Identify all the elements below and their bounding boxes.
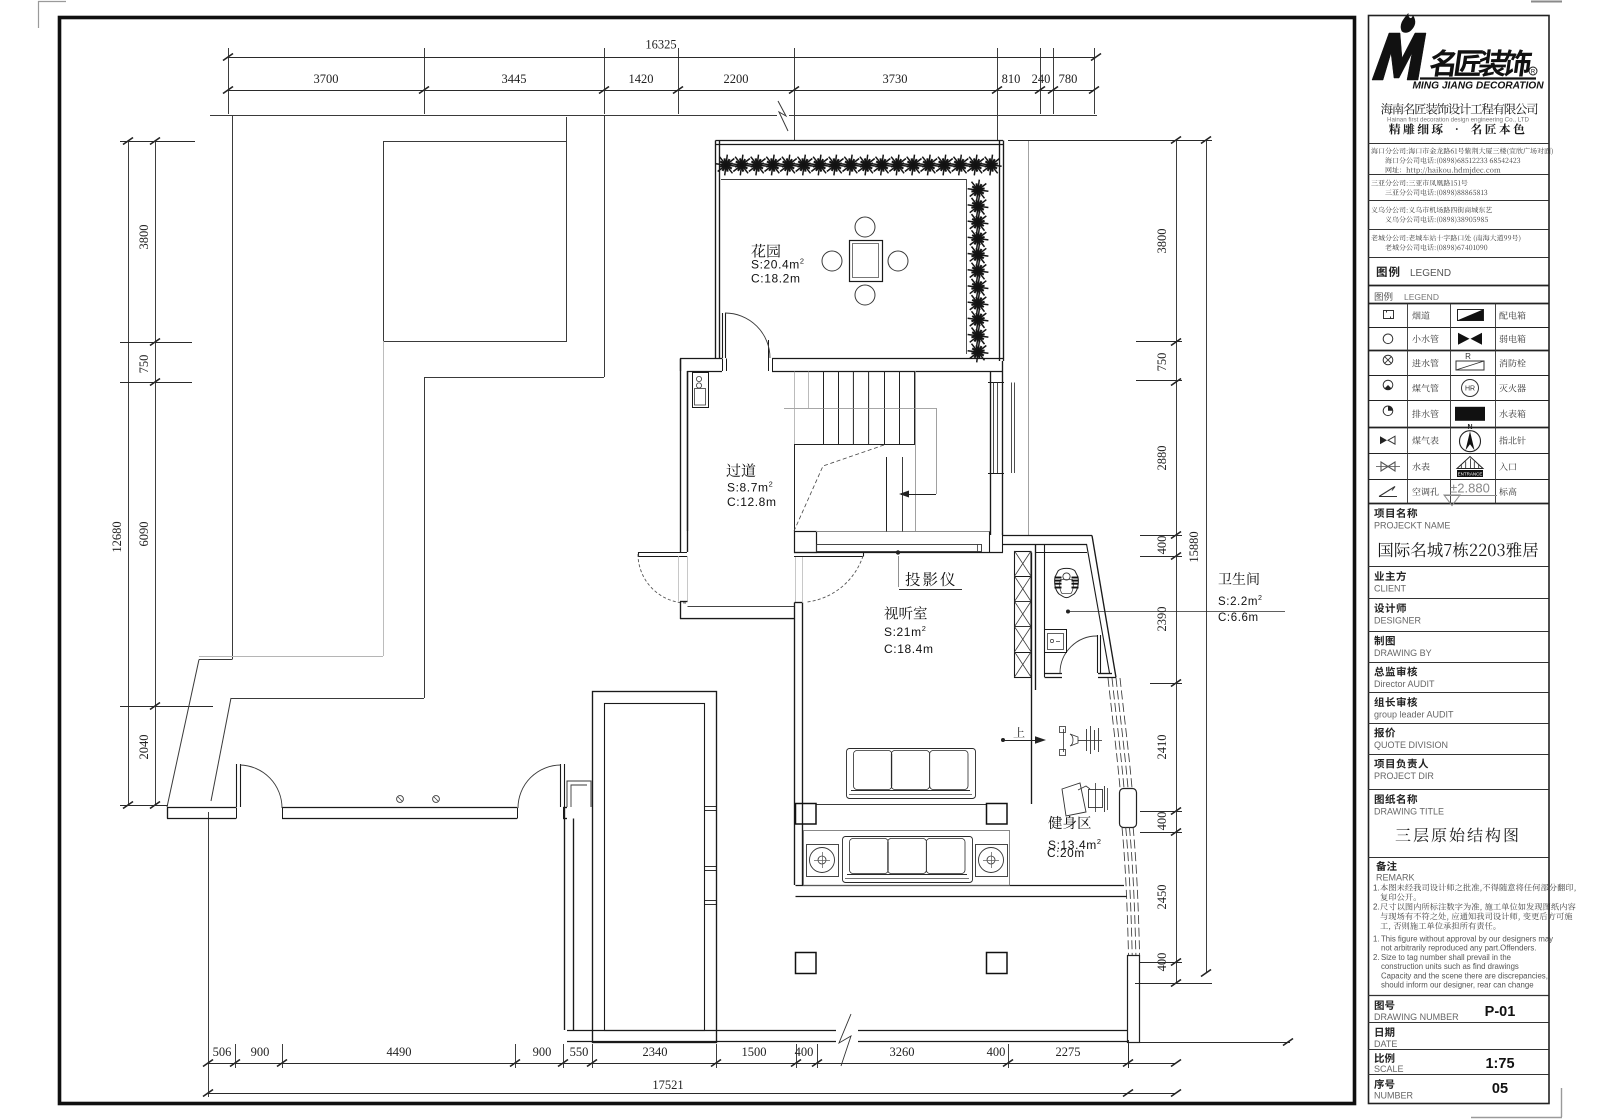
- svg-text:Size to tag number shall preva: Size to tag number shall prevail in the: [1381, 953, 1511, 962]
- svg-text:LEGEND: LEGEND: [1410, 268, 1451, 279]
- svg-text:400: 400: [1155, 536, 1169, 555]
- svg-text:C:20m: C:20m: [1047, 846, 1085, 860]
- svg-text:MING JIANG DECORATION: MING JIANG DECORATION: [1412, 81, 1544, 92]
- svg-text:construction units such as fin: construction units such as find drawings: [1381, 962, 1519, 971]
- svg-text:DRAWING TITLE: DRAWING TITLE: [1374, 807, 1444, 817]
- svg-text:S:2.2m2: S:2.2m2: [1218, 594, 1263, 608]
- svg-text:550: 550: [570, 1045, 589, 1059]
- svg-text:05: 05: [1492, 1081, 1508, 1097]
- svg-text:900: 900: [533, 1045, 552, 1059]
- svg-text:S:20.4m2: S:20.4m2: [751, 257, 805, 272]
- svg-text:240: 240: [1032, 72, 1051, 86]
- svg-text:506: 506: [213, 1045, 232, 1059]
- svg-text:3730: 3730: [883, 72, 908, 86]
- svg-text:group leader AUDIT: group leader AUDIT: [1374, 710, 1454, 720]
- svg-text:P-01: P-01: [1485, 1004, 1516, 1020]
- svg-text:2390: 2390: [1155, 607, 1169, 632]
- svg-text:2200: 2200: [724, 72, 749, 86]
- svg-text:DRAWING NUMBER: DRAWING NUMBER: [1374, 1012, 1459, 1022]
- svg-text:R: R: [1465, 352, 1471, 361]
- svg-text:PROJECT DIR: PROJECT DIR: [1374, 771, 1434, 781]
- svg-text:400: 400: [795, 1045, 814, 1059]
- svg-text:3800: 3800: [1155, 229, 1169, 254]
- svg-text:C:12.8m: C:12.8m: [727, 495, 777, 509]
- svg-text:Capacity and the scene there a: Capacity and the scene there are discrep…: [1381, 971, 1548, 980]
- svg-text:780: 780: [1059, 72, 1078, 86]
- svg-text:900: 900: [251, 1045, 270, 1059]
- svg-text:LEGEND: LEGEND: [1404, 292, 1439, 302]
- svg-text:2450: 2450: [1155, 885, 1169, 910]
- svg-text:6090: 6090: [137, 522, 151, 547]
- svg-text:R: R: [1531, 70, 1536, 76]
- svg-text:PROJECKT NAME: PROJECKT NAME: [1374, 521, 1450, 531]
- svg-text:2.: 2.: [1373, 903, 1380, 912]
- svg-text:CLIENT: CLIENT: [1374, 584, 1407, 594]
- svg-text:1.: 1.: [1373, 935, 1380, 944]
- svg-text:N: N: [1467, 424, 1472, 431]
- svg-text:3800: 3800: [137, 225, 151, 250]
- svg-text:S:21m2: S:21m2: [884, 624, 926, 639]
- svg-text:3700: 3700: [314, 72, 339, 86]
- svg-text:should inform our designer, re: should inform our designer, rear can cha…: [1381, 981, 1534, 990]
- svg-text:2880: 2880: [1155, 446, 1169, 471]
- svg-text:DESIGNER: DESIGNER: [1374, 616, 1422, 626]
- svg-text:DRAWING BY: DRAWING BY: [1374, 648, 1432, 658]
- svg-text:1:75: 1:75: [1485, 1056, 1514, 1072]
- svg-text:SCALE: SCALE: [1374, 1064, 1404, 1074]
- svg-text:810: 810: [1002, 72, 1021, 86]
- svg-text:12680: 12680: [110, 521, 124, 552]
- svg-text:4490: 4490: [387, 1045, 412, 1059]
- svg-text:DATE: DATE: [1374, 1039, 1397, 1049]
- svg-text:16325: 16325: [645, 38, 676, 52]
- svg-text:not arbitrarily reproduced any: not arbitrarily reproduced any part.Offe…: [1381, 944, 1536, 953]
- svg-text:This figure without approval b: This figure without approval by our desi…: [1381, 935, 1553, 944]
- svg-text:15880: 15880: [1187, 531, 1201, 562]
- svg-text:HR: HR: [1465, 386, 1475, 393]
- svg-text:2340: 2340: [643, 1045, 668, 1059]
- svg-text:Hainan first decoration design: Hainan first decoration design engineeri…: [1387, 117, 1529, 124]
- svg-text:1500: 1500: [742, 1045, 767, 1059]
- svg-text:S:8.7m2: S:8.7m2: [727, 480, 773, 495]
- svg-text:C:18.4m: C:18.4m: [884, 642, 934, 656]
- svg-text:Director AUDIT: Director AUDIT: [1374, 679, 1435, 689]
- svg-text:400: 400: [1155, 812, 1169, 831]
- svg-text:ENTRANCE: ENTRANCE: [1458, 472, 1483, 477]
- svg-text:400: 400: [987, 1045, 1006, 1059]
- svg-text:C:6.6m: C:6.6m: [1218, 612, 1259, 624]
- svg-text:2410: 2410: [1155, 735, 1169, 760]
- svg-text:1420: 1420: [629, 72, 654, 86]
- svg-text:±2.880: ±2.880: [1450, 481, 1490, 496]
- svg-text:3445: 3445: [502, 72, 527, 86]
- svg-text:C:18.2m: C:18.2m: [751, 272, 801, 286]
- svg-text:750: 750: [137, 355, 151, 374]
- svg-text:17521: 17521: [652, 1078, 683, 1092]
- svg-text:2.: 2.: [1373, 953, 1380, 962]
- svg-text:1.: 1.: [1373, 884, 1380, 893]
- svg-text:2275: 2275: [1056, 1045, 1081, 1059]
- svg-text:REMARK: REMARK: [1376, 873, 1415, 883]
- svg-text:NUMBER: NUMBER: [1374, 1091, 1414, 1101]
- svg-text:QUOTE DIVISION: QUOTE DIVISION: [1374, 740, 1448, 750]
- svg-text:2040: 2040: [137, 735, 151, 760]
- svg-text:400: 400: [1155, 953, 1169, 972]
- svg-text:750: 750: [1155, 353, 1169, 372]
- svg-text:3260: 3260: [890, 1045, 915, 1059]
